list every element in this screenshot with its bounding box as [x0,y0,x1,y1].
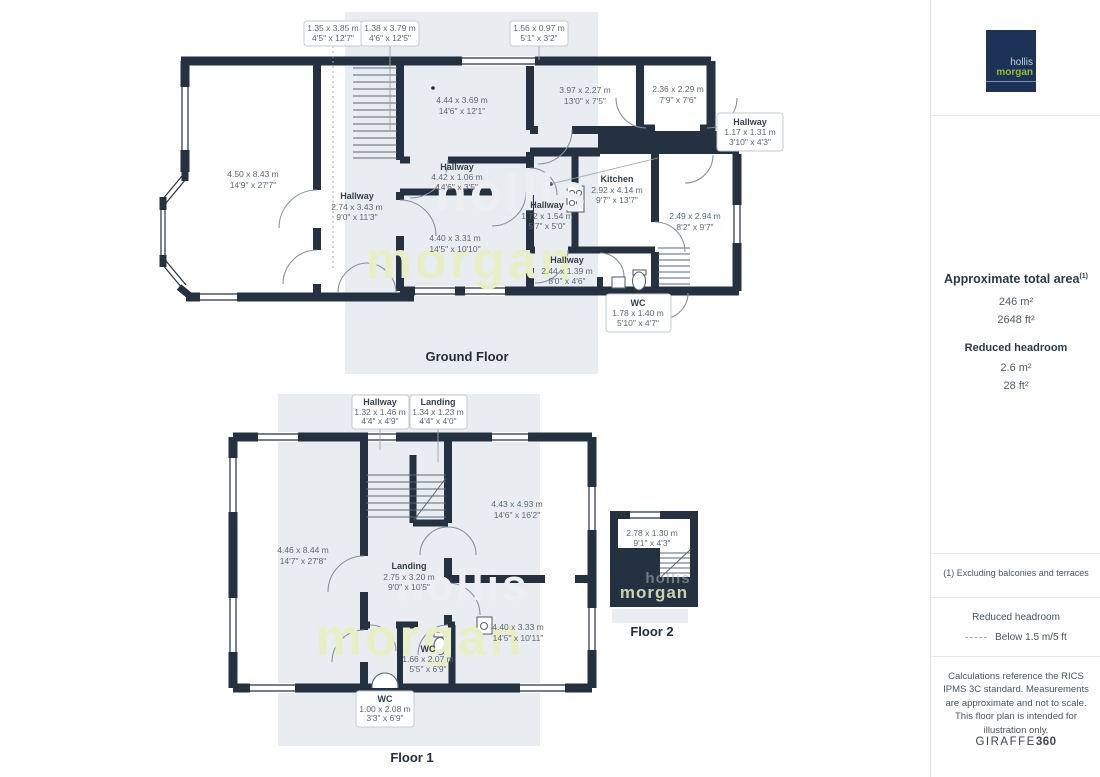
svg-text:4.50 x 8.43 m: 4.50 x 8.43 m [227,169,279,179]
svg-text:14'5" x 10'10": 14'5" x 10'10" [429,244,480,254]
svg-text:Hallway: Hallway [440,162,474,172]
svg-text:14'6" x 3'5": 14'6" x 3'5" [436,182,478,192]
floor2-room-label: 9'1" x 4'3" [633,538,670,548]
svg-text:4'5" x 12'7": 4'5" x 12'7" [312,33,354,43]
svg-text:14'6" x 12'1": 14'6" x 12'1" [439,106,486,116]
svg-text:4.44 x 3.69 m: 4.44 x 3.69 m [436,95,488,105]
svg-text:2.44 x 1.39 m: 2.44 x 1.39 m [541,266,593,276]
svg-text:Hallway: Hallway [550,255,584,265]
svg-text:3'3" x 6'9": 3'3" x 6'9" [366,713,403,723]
floor2-room-label: 2.78 x 1.30 m [626,528,678,538]
divider [931,115,1100,116]
svg-text:4'4" x 4'0": 4'4" x 4'0" [419,416,456,426]
svg-text:14'5" x 10'11": 14'5" x 10'11" [493,633,544,643]
logo-rule [986,81,1036,82]
svg-text:4.40 x 3.33 m: 4.40 x 3.33 m [492,622,544,632]
legend-title: Reduced headroom [931,612,1100,623]
svg-text:14'9" x 27'7": 14'9" x 27'7" [230,180,277,190]
svg-text:9'0" x 10'5": 9'0" x 10'5" [388,582,430,592]
dashed-line-icon [965,637,987,638]
footnote: (1) Excluding balconies and terraces [931,568,1100,578]
svg-text:9'7" x 13'7": 9'7" x 13'7" [596,195,638,205]
svg-text:2.92 x 4.14 m: 2.92 x 4.14 m [591,185,643,195]
svg-text:1.17 x 1.31 m: 1.17 x 1.31 m [724,127,776,137]
svg-text:4'4" x 4'9": 4'4" x 4'9" [361,416,398,426]
giraffe360-brand: GIRAFFE360 [931,736,1100,748]
wc-callout: WC 1.00 x 2.08 m 3'3" x 6'9" [356,691,414,727]
svg-text:5'1" x 3'2": 5'1" x 3'2" [520,33,557,43]
ground-floor-label: Ground Floor [425,349,508,364]
svg-text:1.72 x 1.54 m: 1.72 x 1.54 m [521,211,573,221]
svg-text:9'0" x 11'3": 9'0" x 11'3" [336,212,377,222]
svg-text:4'6" x 12'5": 4'6" x 12'5" [369,33,411,43]
svg-text:1.66 x 2.07 m: 1.66 x 2.07 m [402,654,454,664]
hollis-morgan-logo: hollis morgan [986,30,1036,92]
svg-text:4.46 x 8.44 m: 4.46 x 8.44 m [277,545,329,555]
info-sidebar: hollis morgan Approximate total area(1) … [930,0,1100,777]
footnote-marker: (1) [1079,273,1088,280]
wc-callout: WC 1.78 x 1.40 m 5'10" x 4'7" [606,294,671,332]
svg-text:Landing: Landing [392,561,427,571]
logo-morgan-text: morgan [996,68,1033,78]
hallway-callout: Hallway 1.17 x 1.31 m 3'10" x 4'3" [717,113,783,151]
svg-text:4.40 x 3.31 m: 4.40 x 3.31 m [429,233,481,243]
svg-text:5'10" x 4'7": 5'10" x 4'7" [617,318,659,328]
reduced-ft2: 28 ft² [931,380,1100,392]
svg-text:8'0" x 4'6": 8'0" x 4'6" [548,276,585,286]
svg-text:WC: WC [421,644,436,654]
divider [931,597,1100,598]
svg-text:8'2" x 9'7": 8'2" x 9'7" [676,222,713,232]
svg-text:WC: WC [631,298,646,308]
svg-text:2.36 x 2.29 m: 2.36 x 2.29 m [652,84,704,94]
svg-text:3'10" x 4'3": 3'10" x 4'3" [729,137,771,147]
svg-text:1.35 x 3.85 m: 1.35 x 3.85 m [307,23,359,33]
svg-text:5'7" x 5'0": 5'7" x 5'0" [528,221,565,231]
floorplan-drawing: hollis morgan 1.35 x 3.85 m 4'5" x 12'7"… [0,0,930,777]
svg-text:1.78 x 1.40 m: 1.78 x 1.40 m [612,308,664,318]
floor2-label: Floor 2 [630,624,673,639]
svg-text:WC: WC [378,694,393,704]
area-m2: 246 m² [931,296,1100,308]
svg-text:1.38 x 3.79 m: 1.38 x 3.79 m [364,23,416,33]
svg-text:Hallway: Hallway [733,117,767,127]
disclaimer: Calculations reference the RICS IPMS 3C … [940,670,1092,737]
legend-value: Below 1.5 m/5 ft [995,632,1067,643]
svg-text:Hallway: Hallway [340,191,374,201]
svg-text:Kitchen: Kitchen [600,174,633,184]
floorplan-page: hollis morgan 1.35 x 3.85 m 4'5" x 12'7"… [0,0,1100,777]
area-ft2: 2648 ft² [931,314,1100,326]
svg-text:Hallway: Hallway [530,200,564,210]
svg-text:2.74 x 3.43 m: 2.74 x 3.43 m [331,202,383,212]
svg-text:5'5" x 6'9": 5'5" x 6'9" [409,664,446,674]
divider [931,656,1100,657]
svg-text:13'0" x 7'5": 13'0" x 7'5" [564,96,606,106]
reduced-headroom-title: Reduced headroom [931,342,1100,354]
svg-text:14'6" x 16'2": 14'6" x 16'2" [494,510,541,520]
svg-text:2.49 x 2.94 m: 2.49 x 2.94 m [669,211,721,221]
svg-text:3.97 x 2.27 m: 3.97 x 2.27 m [559,85,611,95]
floor1-label: Floor 1 [390,750,433,765]
svg-text:4.43 x 4.93 m: 4.43 x 4.93 m [491,499,543,509]
svg-text:Hallway: Hallway [363,397,397,407]
divider [931,553,1100,554]
area-title: Approximate total area(1) [931,272,1100,286]
svg-text:4.42 x 1.06 m: 4.42 x 1.06 m [431,172,483,182]
watermark-morgan: morgan [620,583,688,602]
svg-text:14'7" x 27'8": 14'7" x 27'8" [280,556,327,566]
legend: Reduced headroom Below 1.5 m/5 ft [931,612,1100,643]
area-summary: Approximate total area(1) 246 m² 2648 ft… [931,272,1100,398]
svg-text:2.75 x 3.20 m: 2.75 x 3.20 m [383,572,435,582]
reduced-m2: 2.6 m² [931,362,1100,374]
svg-text:1.56 x 0.97 m: 1.56 x 0.97 m [513,23,565,33]
svg-text:7'9" x 7'6": 7'9" x 7'6" [659,95,696,105]
svg-text:Landing: Landing [421,397,456,407]
